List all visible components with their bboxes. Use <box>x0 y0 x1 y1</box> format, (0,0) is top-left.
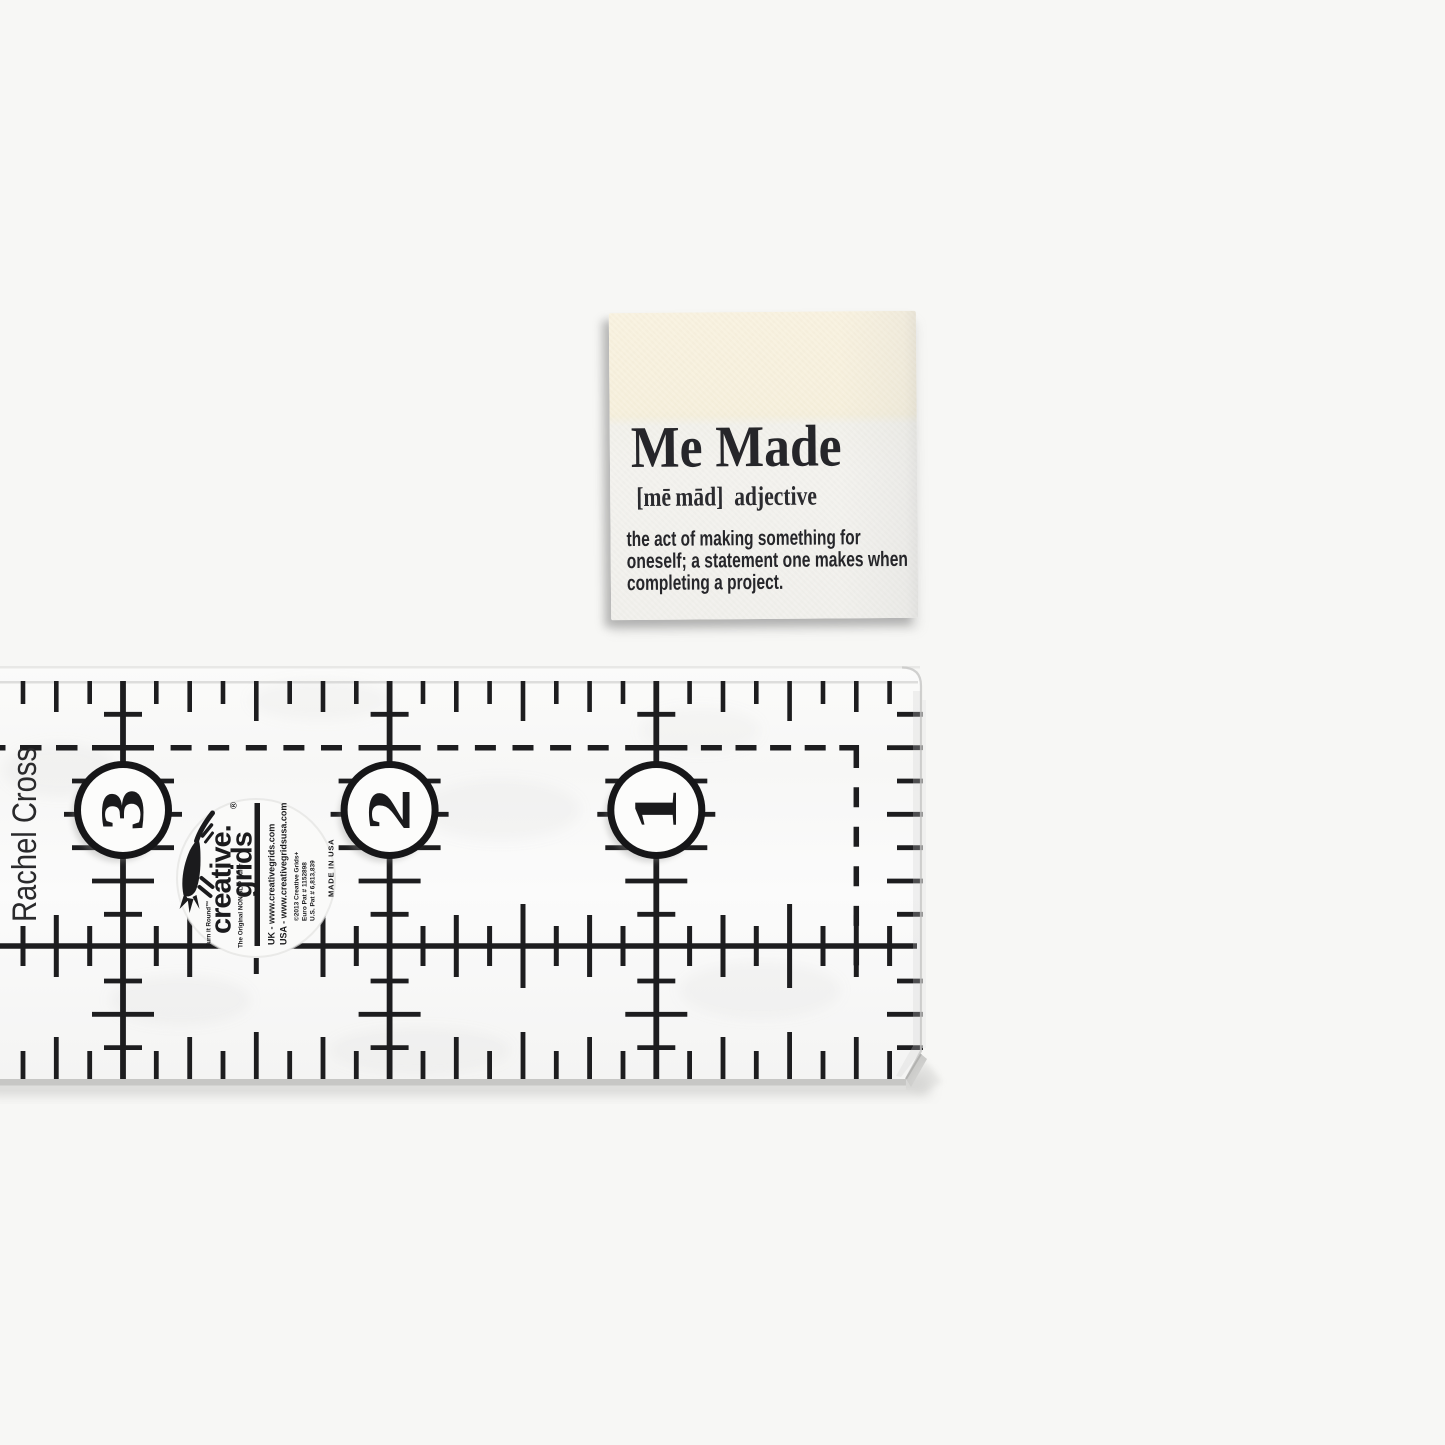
svg-text:©2013 Creative Grids+: ©2013 Creative Grids+ <box>293 852 301 921</box>
svg-text:grids: grids <box>227 832 259 898</box>
svg-text:1: 1 <box>623 788 691 831</box>
svg-text:USA - www.creativegridsusa.com: USA - www.creativegridsusa.com <box>279 803 289 945</box>
svg-text:U.S. Pat # 6,813,839: U.S. Pat # 6,813,839 <box>310 860 317 921</box>
svg-text:UK - www.creativegrids.com: UK - www.creativegrids.com <box>267 824 277 945</box>
svg-text:®: ® <box>229 802 240 809</box>
svg-text:Euro Pat # 1152898: Euro Pat # 1152898 <box>302 862 309 921</box>
svg-text:MADE IN USA: MADE IN USA <box>327 839 336 897</box>
svg-text:2: 2 <box>356 788 424 831</box>
svg-text:3: 3 <box>89 788 157 831</box>
svg-text:Rachel Cross: Rachel Cross <box>6 747 44 922</box>
